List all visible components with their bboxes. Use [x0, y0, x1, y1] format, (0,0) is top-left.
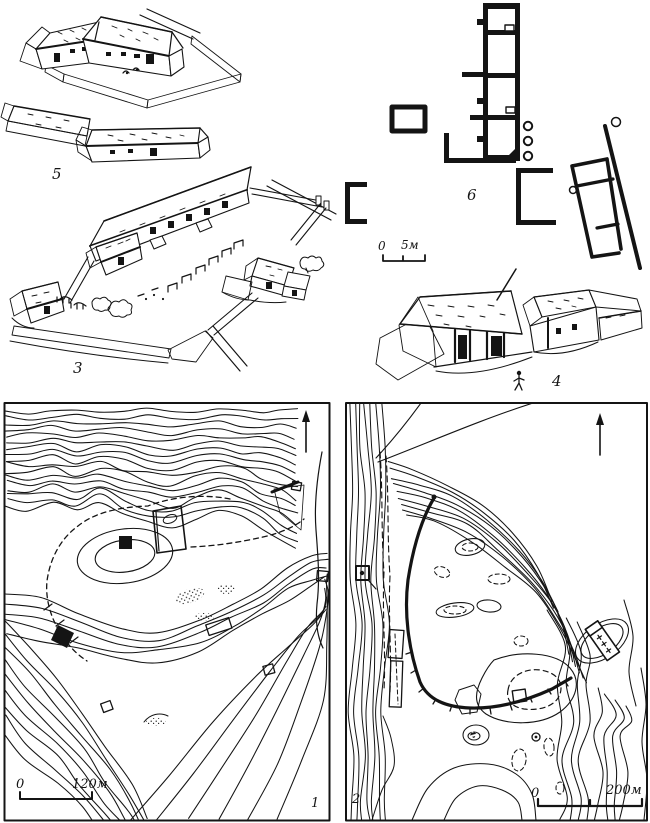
north-arrow-icon	[596, 413, 604, 455]
plan-scale-length: 5м	[401, 239, 419, 251]
contour-line	[359, 404, 365, 820]
archaeological-figure-plate: 5 3 6 4 0 5м 0 120м 1 2 0 200м	[0, 0, 650, 823]
contour-line	[381, 404, 390, 820]
c-shaped-wall	[345, 182, 367, 224]
contour-line	[372, 716, 394, 820]
site-map-1	[1, 403, 329, 823]
scale-bar	[383, 255, 425, 261]
contour-line	[277, 574, 327, 819]
map1-scale-length: 120м	[72, 778, 108, 791]
excavation-plan-6	[345, 3, 640, 268]
north-arrow-icon	[302, 410, 310, 452]
contour-lines	[348, 404, 647, 820]
contour-line	[402, 505, 580, 673]
door	[146, 54, 154, 64]
house-drawing-4	[376, 269, 642, 390]
panel-label-plan: 6	[467, 188, 477, 203]
panel-label-farmstead-large: 3	[73, 361, 83, 376]
map2-label: 2	[352, 793, 360, 806]
contour-line	[219, 588, 326, 819]
survey-squares	[101, 481, 329, 712]
contour-line	[594, 688, 603, 820]
yard-wall	[12, 326, 171, 358]
tree	[300, 256, 324, 273]
map2-scale-zero: 0	[531, 787, 539, 800]
contour-line	[4, 646, 147, 823]
road-lines	[206, 326, 247, 371]
person-figure	[514, 371, 524, 390]
contour-line	[4, 421, 296, 428]
bush	[108, 300, 132, 318]
fence-se	[147, 74, 241, 108]
contour-line	[3, 688, 149, 823]
stream-lines	[376, 403, 533, 462]
contour-line	[612, 700, 624, 820]
contour-line	[407, 515, 587, 683]
contour-line	[5, 674, 147, 823]
multiroom-building	[462, 3, 520, 161]
plan-scale-zero: 0	[378, 240, 386, 252]
pit-circle	[524, 152, 532, 160]
contour-line	[3, 559, 328, 641]
contour-line	[8, 484, 296, 525]
contour-lines	[1, 408, 328, 823]
dashed-boundary	[47, 496, 230, 661]
contour-line	[7, 577, 324, 663]
contour-line	[5, 408, 298, 414]
fence-ne	[191, 36, 241, 82]
contour-line	[6, 414, 298, 420]
contour-line	[5, 502, 296, 548]
map1-scale-zero: 0	[16, 778, 24, 791]
pit-circle	[524, 137, 532, 145]
panel-label-house: 4	[552, 374, 562, 389]
map1-label: 1	[311, 797, 319, 810]
contour-line	[412, 764, 536, 820]
enclosure	[153, 506, 186, 553]
contour-line	[348, 404, 356, 820]
contour-line	[7, 480, 297, 513]
map1-features	[44, 452, 328, 726]
fence-sw	[63, 74, 148, 108]
site-map-2	[346, 403, 647, 821]
pit-circle	[524, 122, 532, 130]
excavation-square	[119, 536, 132, 549]
contour-line	[624, 600, 636, 706]
map-border	[346, 403, 647, 821]
contour-line	[376, 404, 383, 820]
square-structure	[392, 107, 425, 131]
panel-label-farmstead-top: 5	[52, 167, 62, 182]
scale-bar	[538, 799, 642, 806]
map2-scale-length: 200м	[606, 784, 642, 797]
tilted-structure	[572, 126, 640, 268]
plate-artwork	[0, 0, 650, 823]
contour-line	[444, 786, 522, 820]
road-lines	[267, 180, 336, 220]
contour-islands	[433, 536, 564, 794]
contour-line	[7, 461, 298, 486]
bush	[92, 297, 111, 311]
bracket-wall	[516, 168, 556, 225]
farmstead-drawing-3	[10, 167, 336, 371]
contour-line	[6, 455, 297, 483]
rampart-ticks	[406, 652, 568, 714]
contour-line	[189, 597, 327, 818]
pit-circle	[612, 118, 621, 127]
scale-bar	[20, 792, 92, 799]
animal-figure	[71, 303, 86, 309]
rampart-line	[407, 498, 572, 708]
contour-line	[8, 494, 298, 542]
farmstead-drawing-5	[1, 9, 241, 162]
